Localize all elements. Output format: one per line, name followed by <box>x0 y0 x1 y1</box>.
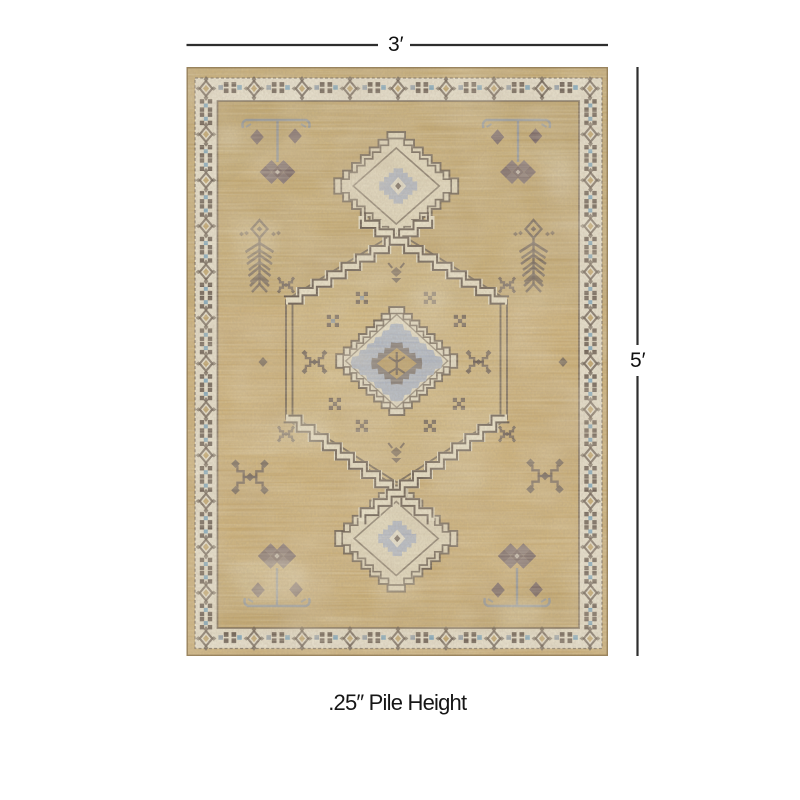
svg-text:.25″ Pile Height: .25″ Pile Height <box>328 690 467 715</box>
svg-text:5′: 5′ <box>630 349 646 372</box>
svg-text:3′: 3′ <box>388 33 404 56</box>
